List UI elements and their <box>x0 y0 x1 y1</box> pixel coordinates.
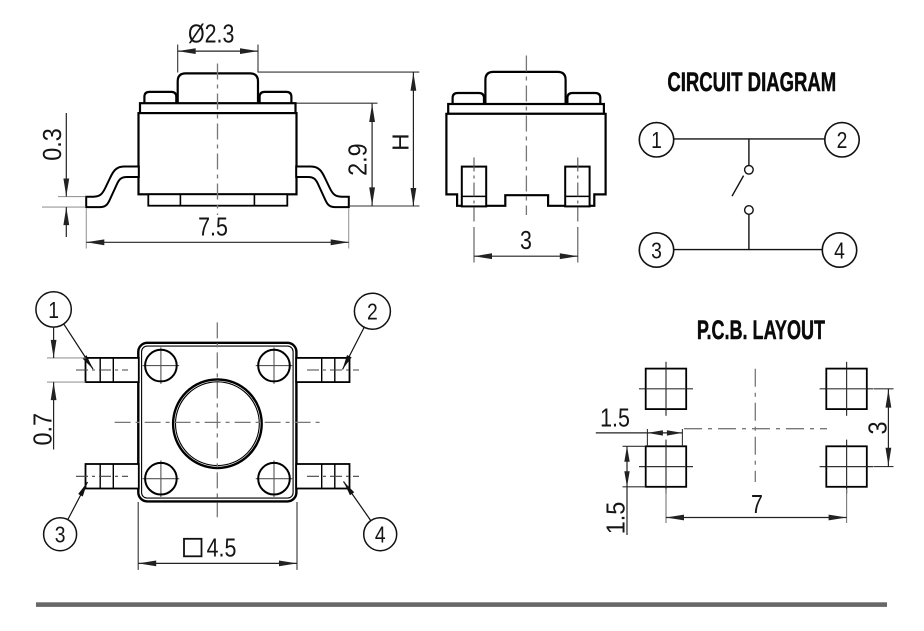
svg-text:2: 2 <box>367 300 378 325</box>
svg-text:1: 1 <box>48 298 59 323</box>
svg-text:0.7: 0.7 <box>30 413 58 446</box>
svg-text:4: 4 <box>375 523 386 548</box>
svg-text:Ø2.3: Ø2.3 <box>188 20 234 48</box>
svg-text:7.5: 7.5 <box>198 213 228 241</box>
svg-text:4: 4 <box>834 239 845 264</box>
svg-text:1: 1 <box>651 129 662 154</box>
svg-text:2: 2 <box>837 129 848 154</box>
svg-text:H: H <box>388 133 413 150</box>
svg-text:3: 3 <box>520 226 532 254</box>
svg-text:2.9: 2.9 <box>345 143 373 176</box>
svg-text:3: 3 <box>55 523 66 548</box>
svg-text:7: 7 <box>751 490 763 518</box>
svg-text:3: 3 <box>651 239 662 264</box>
svg-text:CIRCUIT DIAGRAM: CIRCUIT DIAGRAM <box>667 67 836 97</box>
svg-text:1.5: 1.5 <box>600 404 630 432</box>
svg-text:0.3: 0.3 <box>39 128 67 161</box>
svg-text:P.C.B. LAYOUT: P.C.B. LAYOUT <box>697 314 825 344</box>
svg-text:1.5: 1.5 <box>603 502 631 535</box>
svg-text:3: 3 <box>864 421 892 434</box>
svg-text:4.5: 4.5 <box>207 534 237 562</box>
